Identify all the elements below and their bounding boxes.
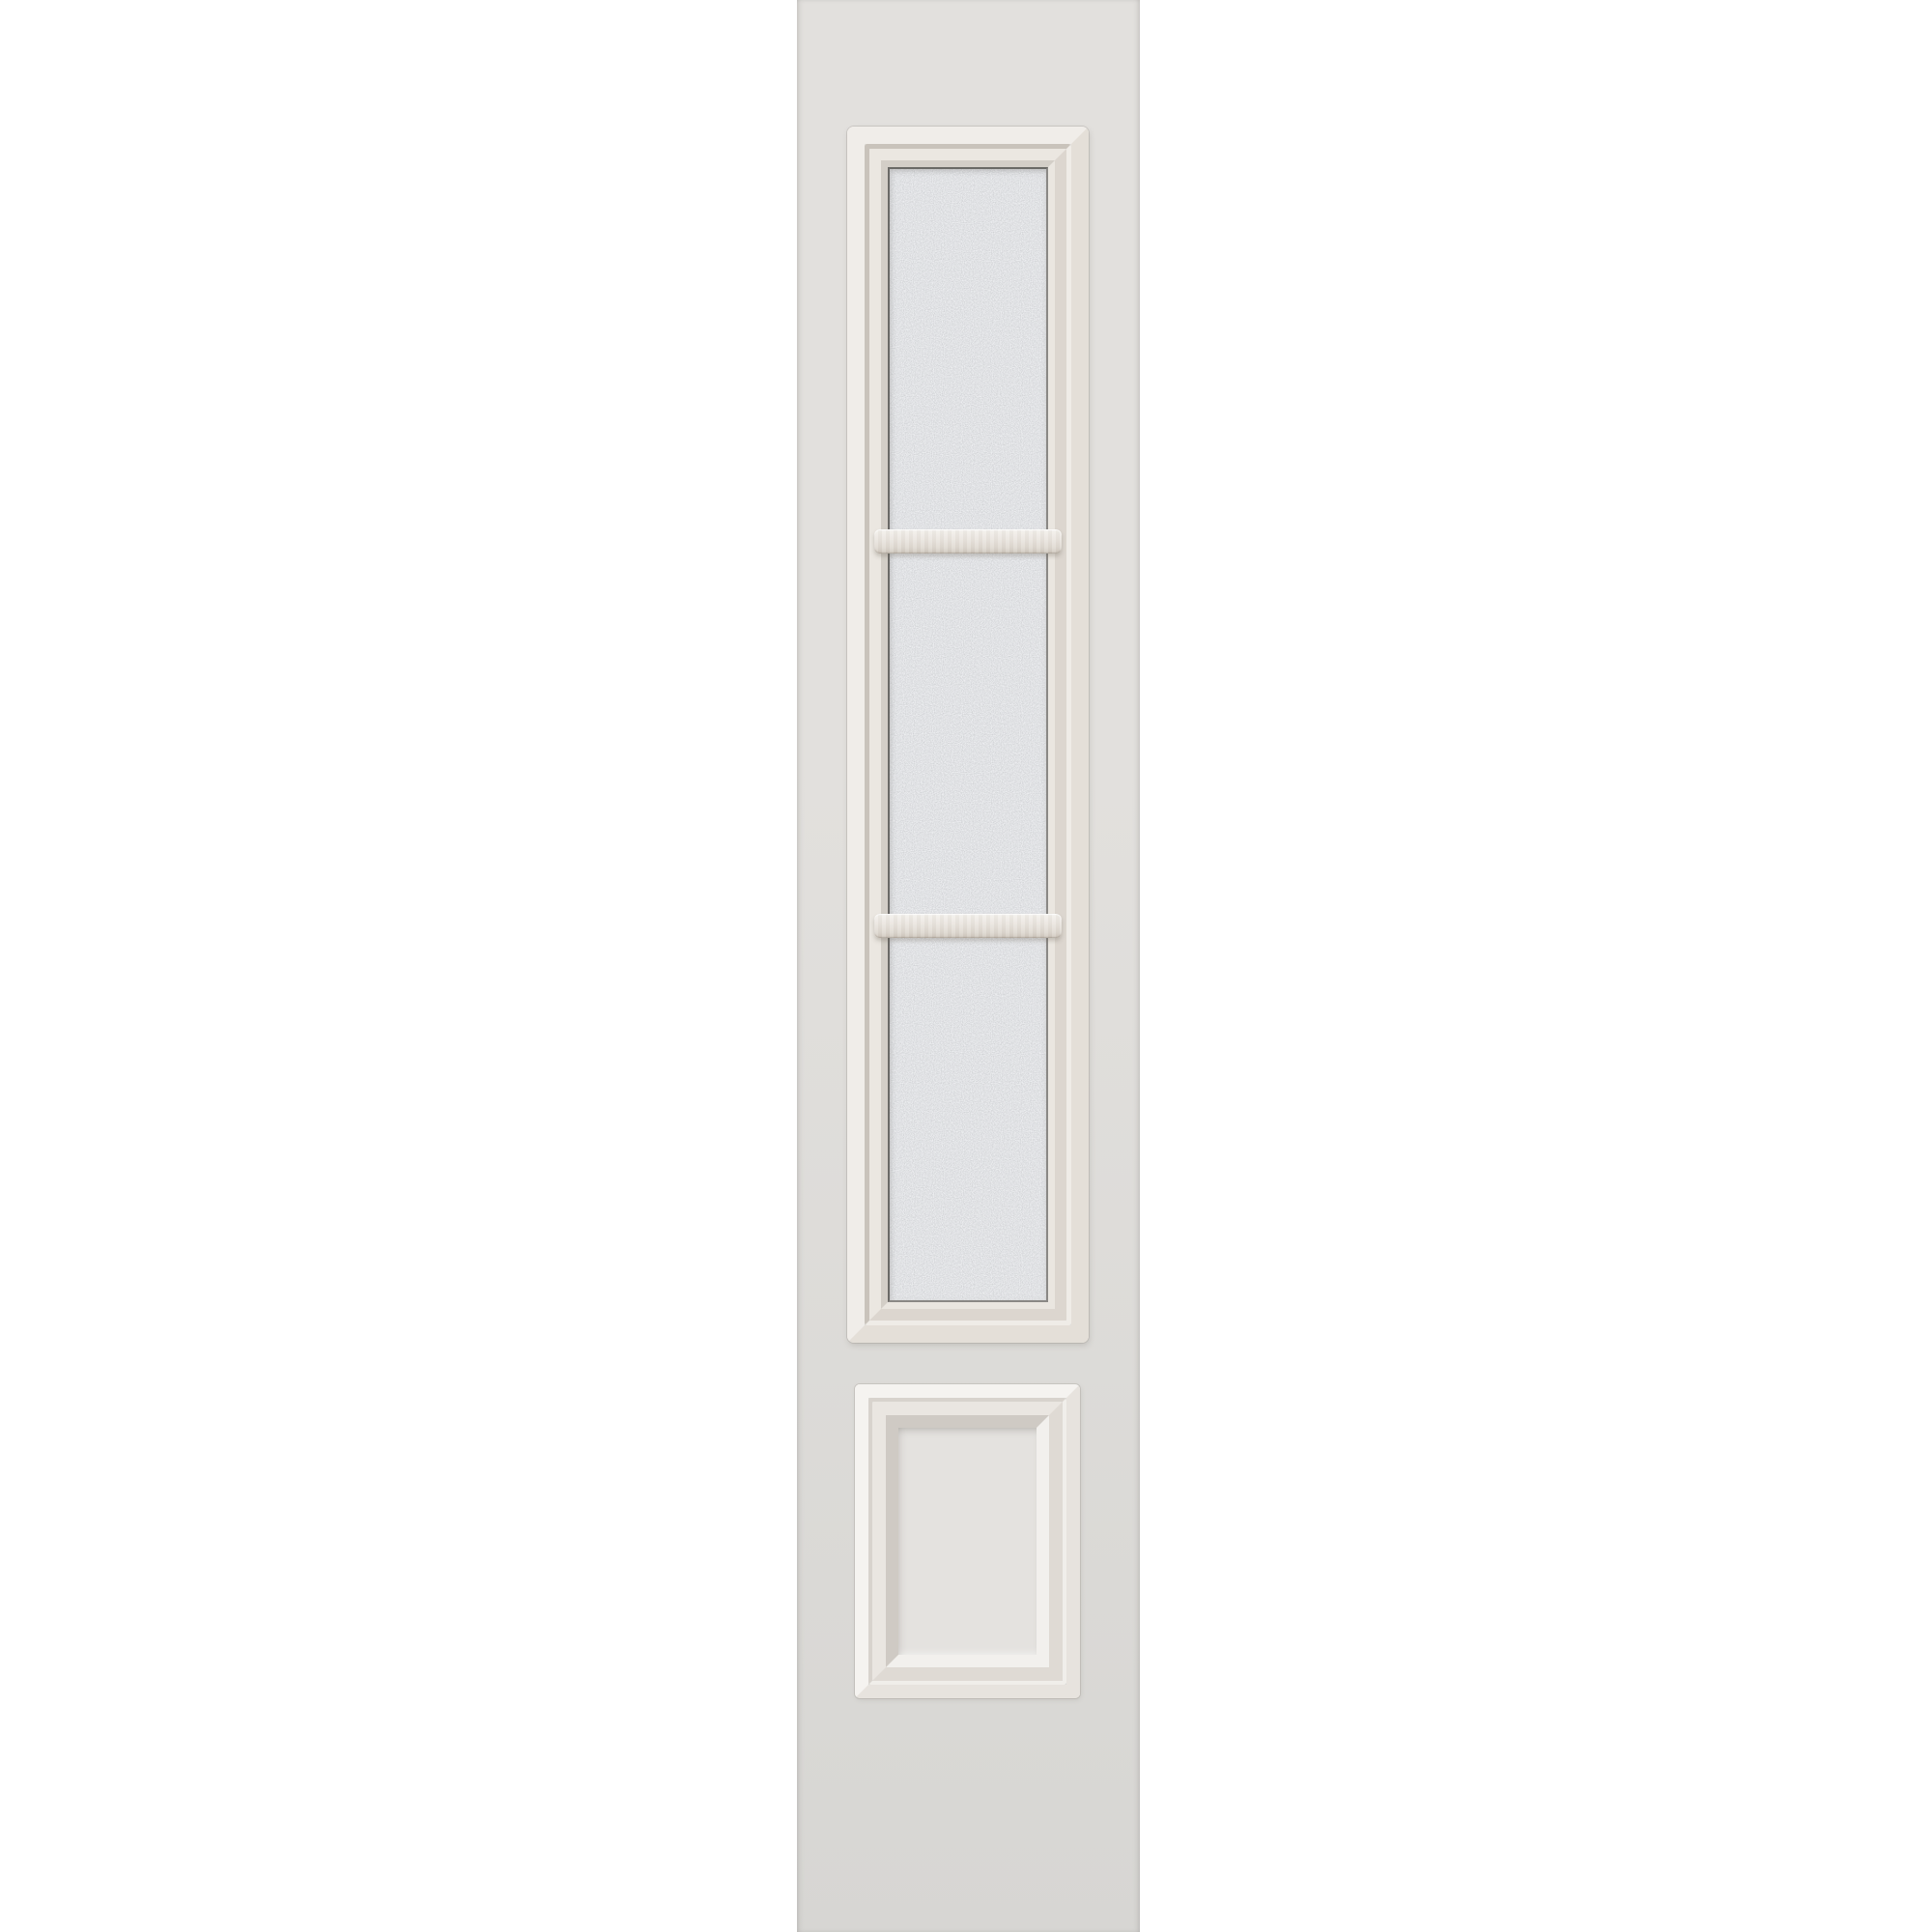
window-frame-outer-molding [847,127,1089,1343]
muntin-bar-lower [874,914,1062,938]
window-frame-inner-bevel [881,160,1055,1309]
window-frame-raised-band [869,149,1066,1321]
window-frame-groove [865,144,1071,1325]
raised-panel-groove [868,1398,1066,1685]
muntin-bar-upper [874,529,1062,554]
product-image [0,0,1932,1932]
frosted-privacy-glass [888,167,1048,1302]
raised-panel-center [898,1428,1037,1655]
door-sidelight-slab [797,0,1140,1932]
glass-inner-shadow [890,169,1046,1300]
raised-panel-band [872,1402,1063,1681]
raised-panel-inner-bevel [886,1415,1049,1667]
raised-panel-outer-molding [855,1384,1080,1698]
